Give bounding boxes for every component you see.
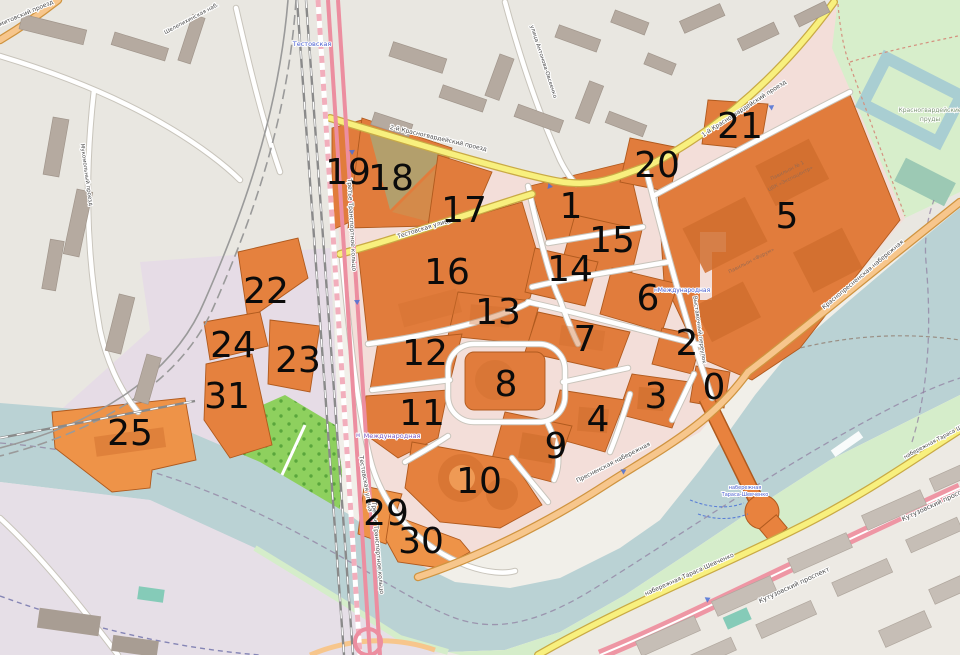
plot-label-11: 11 xyxy=(399,393,445,434)
plot-label-24: 24 xyxy=(210,325,256,366)
plot-label-13: 13 xyxy=(475,292,521,333)
plot-label-17: 17 xyxy=(441,190,487,231)
plot-label-20: 20 xyxy=(634,145,680,186)
osm-map-viewport[interactable]: Тестовская улица Тестовская улица Пресне… xyxy=(0,0,960,655)
plot-label-18: 18 xyxy=(368,158,414,199)
plot-label-1: 1 xyxy=(560,186,583,227)
plot-label-2: 2 xyxy=(676,323,699,364)
plot-label-12: 12 xyxy=(402,333,448,374)
plot-label-16: 16 xyxy=(424,252,470,293)
park-label-line2: пруды xyxy=(920,116,940,123)
plot-label-3: 3 xyxy=(645,376,668,417)
plot-label-5: 5 xyxy=(776,196,799,237)
plot-label-7: 7 xyxy=(574,319,597,360)
station-label-testovskaya: Тестовская xyxy=(292,40,332,48)
plot-label-6: 6 xyxy=(637,278,660,319)
plot-label-23: 23 xyxy=(275,340,321,381)
plot-label-0: 0 xyxy=(703,367,726,408)
plot-label-15: 15 xyxy=(589,220,635,261)
plot-label-22: 22 xyxy=(243,271,289,312)
plot-label-30: 30 xyxy=(398,521,444,562)
map-canvas[interactable]: Тестовская улица Тестовская улица Пресне… xyxy=(0,0,960,655)
pier-label-line2: Тараса-Шевченко xyxy=(721,492,769,498)
pier-label-line1: набережная xyxy=(729,485,762,491)
plot-label-19: 19 xyxy=(325,152,371,193)
plot-label-4: 4 xyxy=(587,399,610,440)
plot-label-10: 10 xyxy=(456,461,502,502)
plot-label-21: 21 xyxy=(717,106,763,147)
plot-label-8: 8 xyxy=(495,364,518,405)
plot-label-9: 9 xyxy=(545,426,568,467)
park-label-line1: Красногвардейские xyxy=(898,107,960,114)
metro-icon-2: М xyxy=(356,433,360,439)
plot-label-14: 14 xyxy=(547,249,593,290)
plot-label-25: 25 xyxy=(107,413,153,454)
metro-label-mezhdunarodnaya-1: Международная xyxy=(658,287,711,294)
plot-label-31: 31 xyxy=(204,376,250,417)
